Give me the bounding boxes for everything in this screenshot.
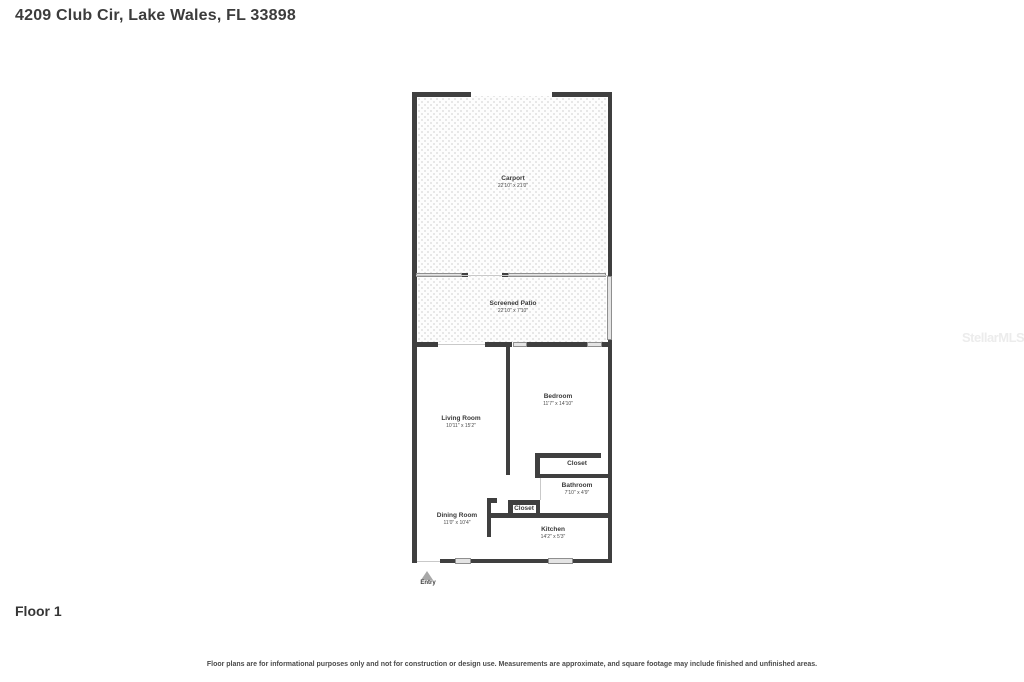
- walls-layer: [0, 0, 1024, 682]
- room-label-kitchen: Kitchen 14'2" x 5'3": [541, 526, 566, 540]
- room-label-bedroom: Bedroom 11'7" x 14'10": [543, 393, 573, 407]
- opening-line: [540, 478, 541, 500]
- room-label-dining-room: Dining Room 11'0" x 10'4": [437, 512, 477, 526]
- room-dimensions: 10'11" x 15'2": [441, 423, 480, 429]
- wall-segment: [506, 347, 511, 475]
- wall-segment: [535, 474, 612, 479]
- opening-line: [417, 561, 440, 562]
- window-segment: [513, 342, 527, 348]
- room-dimensions: 11'0" x 10'4": [437, 520, 477, 526]
- room-dimensions: 22'10" x 7'10": [490, 308, 537, 314]
- floorplan-page: 4209 Club Cir, Lake Wales, FL 33898 Stel…: [0, 0, 1024, 682]
- wall-segment: [412, 92, 471, 97]
- room-label-carport: Carport 22'10" x 21'0": [498, 175, 528, 189]
- room-dimensions: 7'10" x 4'9": [562, 490, 593, 496]
- room-label-hall-closet: Closet: [514, 505, 534, 513]
- room-name: Dining Room: [437, 512, 477, 520]
- wall-segment: [608, 340, 613, 563]
- room-label-bedroom-closet: Closet: [567, 460, 587, 468]
- floor-label: Floor 1: [15, 603, 62, 619]
- wall-segment: [412, 342, 438, 347]
- opening-line: [438, 344, 485, 345]
- wall-segment: [487, 498, 492, 537]
- wall-segment: [412, 92, 417, 563]
- wall-segment: [573, 559, 612, 564]
- wall-segment: [608, 92, 613, 276]
- wall-segment: [535, 453, 601, 458]
- room-name: Living Room: [441, 415, 480, 423]
- room-name: Carport: [498, 175, 528, 183]
- wall-segment: [471, 559, 548, 564]
- opening-line: [416, 275, 608, 276]
- wall-segment: [440, 559, 455, 564]
- window-segment: [455, 558, 471, 564]
- entry-arrow-icon: [421, 571, 433, 580]
- entry-label: Entry: [420, 580, 435, 586]
- room-name: Screened Patio: [490, 300, 537, 308]
- wall-segment: [552, 92, 612, 97]
- room-label-bathroom: Bathroom 7'10" x 4'9": [562, 482, 593, 496]
- wall-segment: [602, 342, 612, 347]
- window-segment: [607, 276, 613, 340]
- wall-segment: [527, 342, 587, 347]
- window-segment: [548, 558, 573, 564]
- room-label-screened-patio: Screened Patio 22'10" x 7'10": [490, 300, 537, 314]
- floor-plan: Carport 22'10" x 21'0" Screened Patio 22…: [0, 0, 1024, 682]
- room-name: Bedroom: [543, 393, 573, 401]
- room-dimensions: 11'7" x 14'10": [543, 401, 573, 407]
- room-name: Kitchen: [541, 526, 566, 534]
- room-dimensions: 22'10" x 21'0": [498, 183, 528, 189]
- room-label-living-room: Living Room 10'11" x 15'2": [441, 415, 480, 429]
- window-segment: [587, 342, 602, 348]
- disclaimer-text: Floor plans are for informational purpos…: [0, 661, 1024, 668]
- room-name: Closet: [567, 460, 587, 468]
- room-name: Closet: [514, 505, 534, 513]
- wall-segment: [487, 513, 613, 518]
- room-dimensions: 14'2" x 5'3": [541, 534, 566, 540]
- room-name: Bathroom: [562, 482, 593, 490]
